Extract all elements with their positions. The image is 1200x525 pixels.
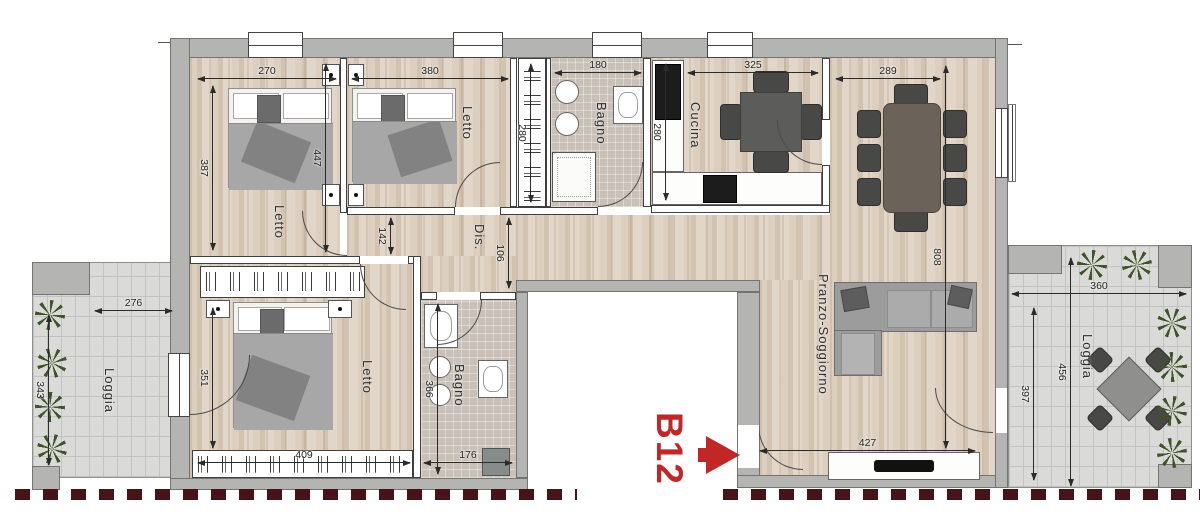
dining-chair: [943, 144, 967, 172]
window: [453, 32, 503, 58]
tv: [874, 460, 934, 472]
courtyard-wall-left: [516, 292, 528, 478]
dim-living-height: 808: [945, 66, 946, 448]
bathroom-top-label: Bagno: [594, 102, 609, 145]
interior-wall: [480, 292, 516, 300]
interior-wall: [822, 58, 830, 120]
dining-chair: [857, 178, 881, 206]
dim-living-bottom-width: 427: [760, 450, 975, 451]
dim-kitchen-height: 280: [665, 64, 666, 200]
loggia-left-pillar-top: [32, 262, 90, 295]
plant-icon: [1077, 250, 1107, 280]
dim-bedroom1-height: 387: [212, 86, 213, 250]
loggia-right-label: Loggia: [1080, 334, 1095, 379]
kitchen-sink: [655, 64, 681, 120]
interior-wall: [190, 256, 360, 264]
dining-chair: [943, 178, 967, 206]
loggia-left-pillar-bottom: [32, 466, 60, 490]
wall-tick-right: [1008, 44, 1022, 45]
loggia-right-pillar-top: [1008, 245, 1062, 274]
window-sill: [1008, 104, 1016, 182]
window: [995, 108, 1008, 178]
dim-loggia-right-width: 360: [1012, 293, 1186, 294]
wardrobe-bedroom-bottom-top: [200, 266, 365, 298]
washbasin: [613, 86, 643, 124]
living-label: Pranzo-Soggiorno: [816, 274, 831, 395]
interior-wall: [500, 207, 598, 215]
bidet: [555, 112, 579, 136]
french-window: [168, 353, 190, 417]
dining-table: [883, 103, 941, 213]
dining-chair: [894, 210, 928, 232]
unit-label: B12: [648, 412, 690, 486]
wall-tick-left: [158, 42, 170, 43]
nightstand: [328, 300, 352, 318]
interior-wall: [421, 292, 437, 300]
window: [707, 32, 753, 58]
dim-hallway-left: 142: [390, 218, 391, 254]
toilet: [429, 356, 451, 378]
exterior-wall-left: [170, 38, 190, 490]
bathroom-bottom-label: Bagno: [452, 364, 467, 407]
dining-chair: [943, 110, 967, 138]
loggia-right-pillar-topright: [1158, 245, 1192, 288]
dining-chair: [857, 144, 881, 172]
boundary-dash-left: [15, 489, 577, 500]
dim-bathroom-bottom-height: 366: [437, 304, 438, 474]
shower: [552, 152, 596, 202]
bedroom-top-mid-label: Letto: [460, 106, 475, 140]
dim-bathroom-top-width: 180: [555, 72, 641, 73]
double-bed-2: [352, 88, 456, 182]
dim-loggia-left-height: 343: [48, 315, 49, 465]
kitchen-chair: [753, 151, 789, 173]
interior-wall: [651, 205, 830, 213]
dim-loggia-right-inner-height: 397: [1033, 308, 1034, 480]
floor-plan: 270 380 180 325 289 387 447 280 280 142 …: [0, 0, 1200, 525]
loggia-left-label: Loggia: [102, 368, 117, 413]
toilet: [555, 80, 579, 104]
interior-wall: [546, 58, 551, 207]
bedroom-bottom-label: Letto: [360, 360, 375, 394]
kitchen-chair: [720, 104, 742, 140]
interior-wall: [413, 256, 421, 478]
entrance-arrow-icon: [706, 436, 740, 474]
washbasin: [478, 360, 508, 398]
interior-wall: [347, 207, 455, 215]
cooktop: [703, 175, 737, 203]
double-bed-1: [228, 88, 332, 188]
entrance-opening: [738, 425, 759, 468]
hallway-floor: [347, 215, 516, 256]
loggia-door-opening: [996, 388, 1007, 433]
bedroom-top-left-label: Letto: [272, 205, 287, 239]
dining-chair: [857, 110, 881, 138]
dim-loggia-left-width: 276: [95, 310, 172, 311]
dim-kitchen-width: 325: [688, 72, 818, 73]
hallway-label: Dis.: [472, 224, 487, 250]
boundary-dash-right: [723, 489, 1200, 500]
dim-bedroom1-width: 270: [198, 78, 336, 79]
dim-bedroom3-width: 409: [198, 462, 410, 463]
kitchen-label: Cucina: [688, 102, 703, 148]
passage-floor: [516, 215, 830, 280]
dim-bedroom3-height: 351: [212, 308, 213, 448]
interior-wall: [340, 58, 347, 213]
nightstand: [348, 184, 364, 206]
dim-loggia-right-outer-height: 456: [1070, 258, 1071, 486]
sofa-horizontal: [834, 282, 977, 332]
window: [592, 32, 642, 58]
interior-wall: [643, 58, 651, 207]
dim-living-top-width: 289: [836, 78, 940, 79]
kitchen-chair: [753, 71, 789, 93]
sofa-chaise: [834, 330, 882, 376]
courtyard-wall-top: [516, 280, 760, 292]
dim-closet-height: 280: [530, 64, 531, 202]
window: [248, 32, 303, 58]
kitchen-counter-bottom: [652, 172, 822, 205]
dim-hallway-right: 106: [508, 218, 509, 288]
dim-bedroom2-width: 380: [352, 78, 508, 79]
dim-bedroom2-height: 447: [325, 64, 326, 252]
